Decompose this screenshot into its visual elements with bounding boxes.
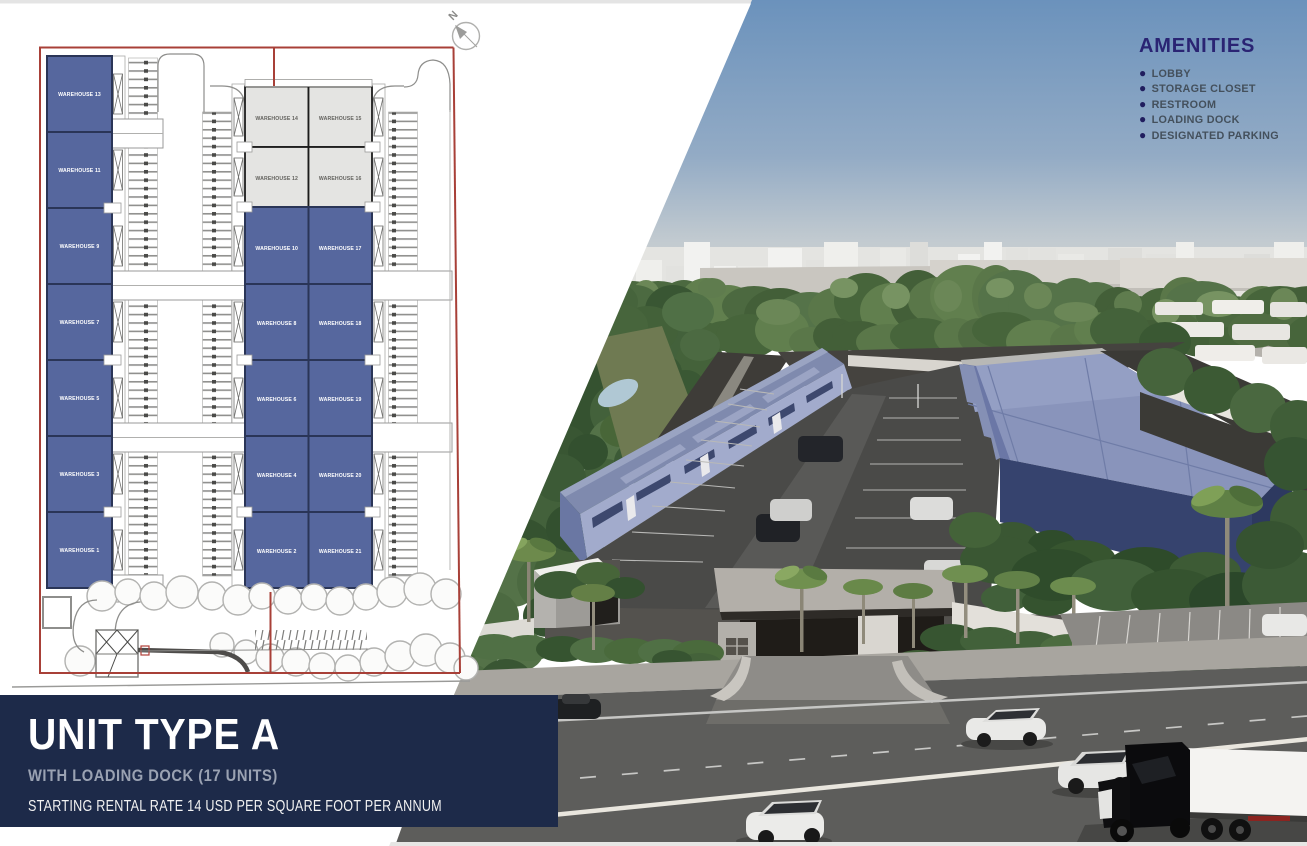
svg-text:WAREHOUSE 18: WAREHOUSE 18: [319, 321, 362, 327]
svg-text:WAREHOUSE 6: WAREHOUSE 6: [257, 397, 297, 403]
svg-text:WAREHOUSE 12: WAREHOUSE 12: [255, 176, 298, 182]
svg-text:WAREHOUSE 2: WAREHOUSE 2: [257, 549, 297, 555]
svg-text:WAREHOUSE 9: WAREHOUSE 9: [60, 244, 100, 250]
svg-text:WAREHOUSE 13: WAREHOUSE 13: [58, 92, 101, 98]
svg-text:WAREHOUSE 5: WAREHOUSE 5: [60, 396, 100, 402]
svg-text:WAREHOUSE 16: WAREHOUSE 16: [319, 176, 362, 182]
svg-text:WAREHOUSE 7: WAREHOUSE 7: [60, 320, 100, 326]
svg-text:WAREHOUSE 10: WAREHOUSE 10: [255, 246, 298, 252]
svg-text:WAREHOUSE 3: WAREHOUSE 3: [60, 472, 100, 478]
svg-text:WAREHOUSE 19: WAREHOUSE 19: [319, 397, 362, 403]
svg-text:WAREHOUSE 11: WAREHOUSE 11: [58, 168, 100, 174]
svg-text:WAREHOUSE 20: WAREHOUSE 20: [319, 473, 362, 479]
svg-text:WAREHOUSE 1: WAREHOUSE 1: [60, 548, 100, 554]
svg-text:WAREHOUSE 8: WAREHOUSE 8: [257, 321, 297, 327]
svg-text:WAREHOUSE 21: WAREHOUSE 21: [319, 549, 362, 555]
svg-text:WAREHOUSE 14: WAREHOUSE 14: [255, 116, 298, 122]
svg-text:WAREHOUSE 4: WAREHOUSE 4: [257, 473, 297, 479]
svg-text:WAREHOUSE 17: WAREHOUSE 17: [319, 246, 362, 252]
svg-text:WAREHOUSE 15: WAREHOUSE 15: [319, 116, 362, 122]
